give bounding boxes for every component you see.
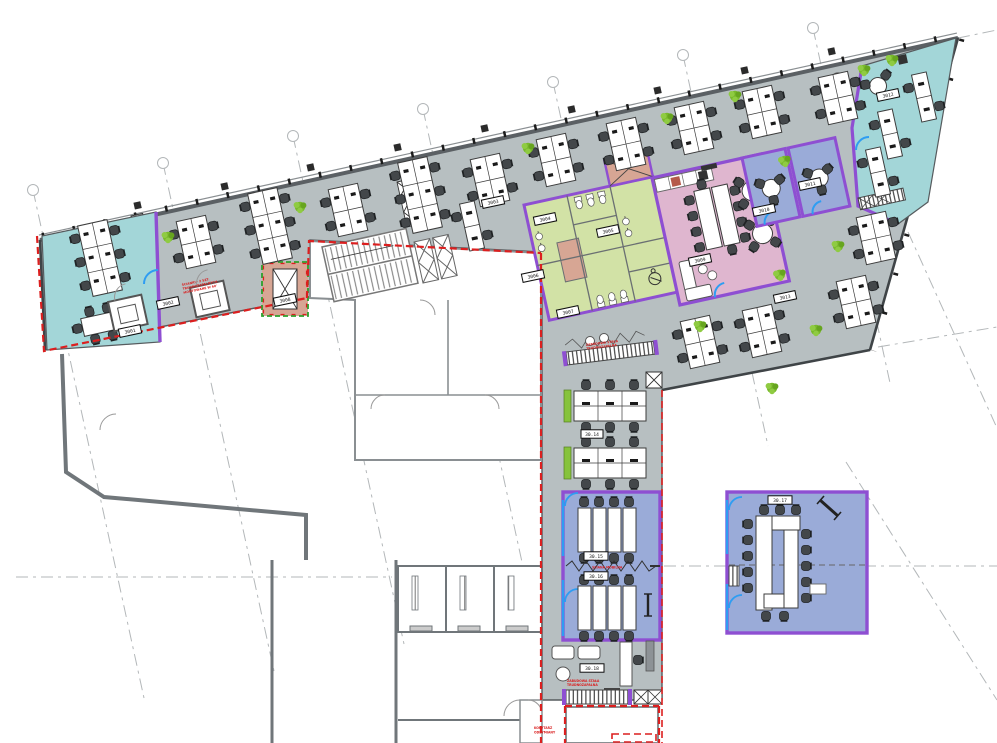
annotation-cabinet-bottom: ZABUDOWA STAŁA TRUDNOZAPALNA <box>567 679 600 687</box>
shaft-room-west <box>262 262 308 316</box>
room-tag: 30.18 <box>580 664 604 672</box>
room-tag: 30.14 <box>581 430 603 438</box>
room-tag: 30.15 <box>584 552 608 560</box>
side-table <box>810 584 826 594</box>
floor-plan-canvas: 3001 3002 3003 3004 3005 3006 3007 3008 … <box>0 0 997 743</box>
floor-plan-drawing: 3001 3002 3003 3004 3005 3006 3007 3008 … <box>0 0 997 743</box>
building-core <box>310 229 541 460</box>
room-tag: 30.17 <box>768 496 792 504</box>
svg-text:30.17: 30.17 <box>773 498 787 504</box>
svg-text:KORYTARZ: KORYTARZ <box>534 726 553 730</box>
svg-text:ŚCIANA MOBILNA: ŚCIANA MOBILNA <box>592 565 623 570</box>
radiator <box>729 566 739 586</box>
room-cyan-right <box>852 38 956 224</box>
svg-text:TRUDNOZAPALNA: TRUDNOZAPALNA <box>567 683 598 687</box>
shaft-box <box>646 372 662 388</box>
svg-text:30.14: 30.14 <box>585 432 599 438</box>
svg-text:30.15: 30.15 <box>589 554 603 560</box>
neighbour-space-walls <box>62 354 396 743</box>
svg-text:30.18: 30.18 <box>585 666 599 672</box>
elevator-bank <box>398 566 542 720</box>
locker-wall-bottom <box>562 689 662 705</box>
svg-text:30.16: 30.16 <box>589 574 603 580</box>
room-conference-island <box>727 492 867 633</box>
svg-text:ODDYMIANY: ODDYMIANY <box>534 731 556 735</box>
annotation-smoke-corridor: KORYTARZ ODDYMIANY <box>534 726 556 735</box>
cabinet-box <box>897 54 908 65</box>
room-cyan-left <box>42 212 160 350</box>
room-tag: 30.16 <box>584 572 608 580</box>
annotation-mobile-wall: ŚCIANA MOBILNA <box>592 565 623 570</box>
